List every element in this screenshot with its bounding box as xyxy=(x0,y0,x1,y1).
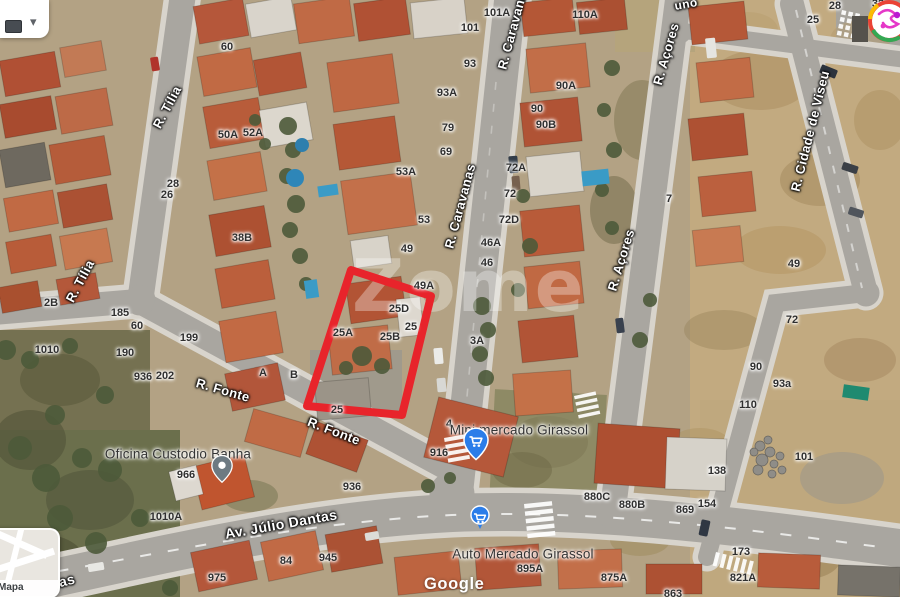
house-number-label: 25 xyxy=(807,14,819,26)
house-number-label: 875A xyxy=(601,572,627,584)
house-number-label: 936 xyxy=(343,481,361,493)
house-number-label: 110 xyxy=(739,399,757,411)
house-number-label: 3A xyxy=(470,335,484,347)
house-number-label: 1010 xyxy=(35,344,59,356)
house-number-label: 880C xyxy=(584,491,610,503)
inset-label-bar: Mapa xyxy=(0,580,58,596)
house-number-label: 202 xyxy=(156,370,174,382)
street-name-label: R. Tília xyxy=(63,257,98,305)
house-number-label: 138 xyxy=(708,465,726,477)
house-number-label: B xyxy=(290,369,298,381)
house-number-label: A xyxy=(259,367,267,379)
house-number-label: 7 xyxy=(666,193,672,205)
house-number-label: 53A xyxy=(396,166,416,178)
street-name-label: Av. Júlio Dantas xyxy=(224,506,339,542)
house-number-label: 110A xyxy=(572,9,598,21)
house-number-label: 190 xyxy=(116,347,134,359)
street-name-label: R. Cidade de Viseu xyxy=(788,69,833,193)
house-number-label: 72A xyxy=(506,162,526,174)
house-number-label: 2B xyxy=(44,297,58,309)
chevron-down-icon[interactable]: ▾ xyxy=(30,14,37,30)
map-labels-layer: R. TíliaR. TíliaR. CaravanasR. Caravanas… xyxy=(0,0,900,597)
house-number-label: 93a xyxy=(773,378,791,390)
house-number-label: 49 xyxy=(788,258,800,270)
house-number-label: 895A xyxy=(517,563,543,575)
house-number-label: 154 xyxy=(698,498,716,510)
inset-label: Mapa xyxy=(0,580,58,593)
house-number-label: 90B xyxy=(536,119,556,131)
poi-marker-oficina-custodio-banha[interactable] xyxy=(211,454,233,489)
house-number-label: 60 xyxy=(221,41,233,53)
house-number-label: 185 xyxy=(111,307,129,319)
poi-marker-auto-mercado-girassol[interactable] xyxy=(469,505,491,538)
house-number-label: 101A xyxy=(484,7,510,19)
house-number-label: 945 xyxy=(319,552,337,564)
house-number-label: 93A xyxy=(437,87,457,99)
house-number-label: 199 xyxy=(180,332,198,344)
house-number-label: 863 xyxy=(664,588,682,597)
house-number-label: 72 xyxy=(504,188,516,200)
house-number-label: 916 xyxy=(430,447,448,459)
house-number-label: 869 xyxy=(676,504,694,516)
house-number-label: 52A xyxy=(243,127,263,139)
street-name-label: R. Açores xyxy=(604,227,637,292)
house-number-label: 72D xyxy=(499,214,519,226)
shopping-cart-pin-icon xyxy=(463,427,489,461)
house-number-label: 69 xyxy=(440,146,452,158)
google-logo: Google xyxy=(424,575,484,594)
street-name-label: R. Tília xyxy=(150,83,185,131)
house-number-label: 79 xyxy=(442,122,454,134)
account-avatar[interactable] xyxy=(866,0,900,44)
house-number-label: 90 xyxy=(531,103,543,115)
street-name-label: R. Fonte xyxy=(194,375,251,405)
house-number-label: 25 xyxy=(331,404,343,416)
shopping-cart-dot-icon xyxy=(469,505,491,533)
house-number-label: 46A xyxy=(481,237,501,249)
house-number-label: 38B xyxy=(232,232,252,244)
map-canvas[interactable]: Zome R. TíliaR. TíliaR. CaravanasR. Cara… xyxy=(0,0,900,597)
house-number-label: 25D xyxy=(389,303,409,315)
house-number-label: 821A xyxy=(730,572,756,584)
house-number-label: 173 xyxy=(732,546,750,558)
map-thumbnail-icon xyxy=(5,20,22,33)
house-number-label: 28 xyxy=(829,0,841,12)
house-number-label: 25B xyxy=(380,331,400,343)
house-number-label: 975 xyxy=(208,572,226,584)
street-name-label: R. Açores xyxy=(650,21,682,86)
house-number-label: 93 xyxy=(464,58,476,70)
street-name-label: R. Caravanas xyxy=(441,162,478,250)
house-number-label: 101 xyxy=(461,22,479,34)
house-number-label: 60 xyxy=(131,320,143,332)
house-number-label: 25A xyxy=(333,327,353,339)
house-number-label: 50A xyxy=(218,129,238,141)
poi-label-auto-mercado-girassol[interactable]: Auto Mercado Girassol xyxy=(452,547,594,562)
house-number-label: 966 xyxy=(177,469,195,481)
house-number-label: 72 xyxy=(786,314,798,326)
map-pin-icon xyxy=(211,454,233,484)
collapsed-search-panel[interactable]: ▾ xyxy=(0,0,49,38)
house-number-label: 84 xyxy=(280,555,292,567)
house-number-label: 90A xyxy=(556,80,576,92)
street-name-label: uno xyxy=(673,0,698,13)
house-number-label: 26 xyxy=(161,189,173,201)
street-name-label: R. Fonte xyxy=(306,414,363,448)
house-number-label: 101 xyxy=(795,451,813,463)
house-number-label: 49A xyxy=(414,280,434,292)
house-number-label: 1010A xyxy=(150,511,182,523)
map-inset-toggle[interactable]: Mapa xyxy=(0,528,60,597)
house-number-label: 53 xyxy=(418,214,430,226)
house-number-label: 49 xyxy=(401,243,413,255)
house-number-label: 90 xyxy=(750,361,762,373)
house-number-label: 46 xyxy=(481,257,493,269)
house-number-label: 25 xyxy=(405,321,417,333)
house-number-label: 880B xyxy=(619,499,645,511)
house-number-label: 936 xyxy=(134,371,152,383)
poi-marker-mini-mercado-girassol[interactable] xyxy=(463,427,489,466)
